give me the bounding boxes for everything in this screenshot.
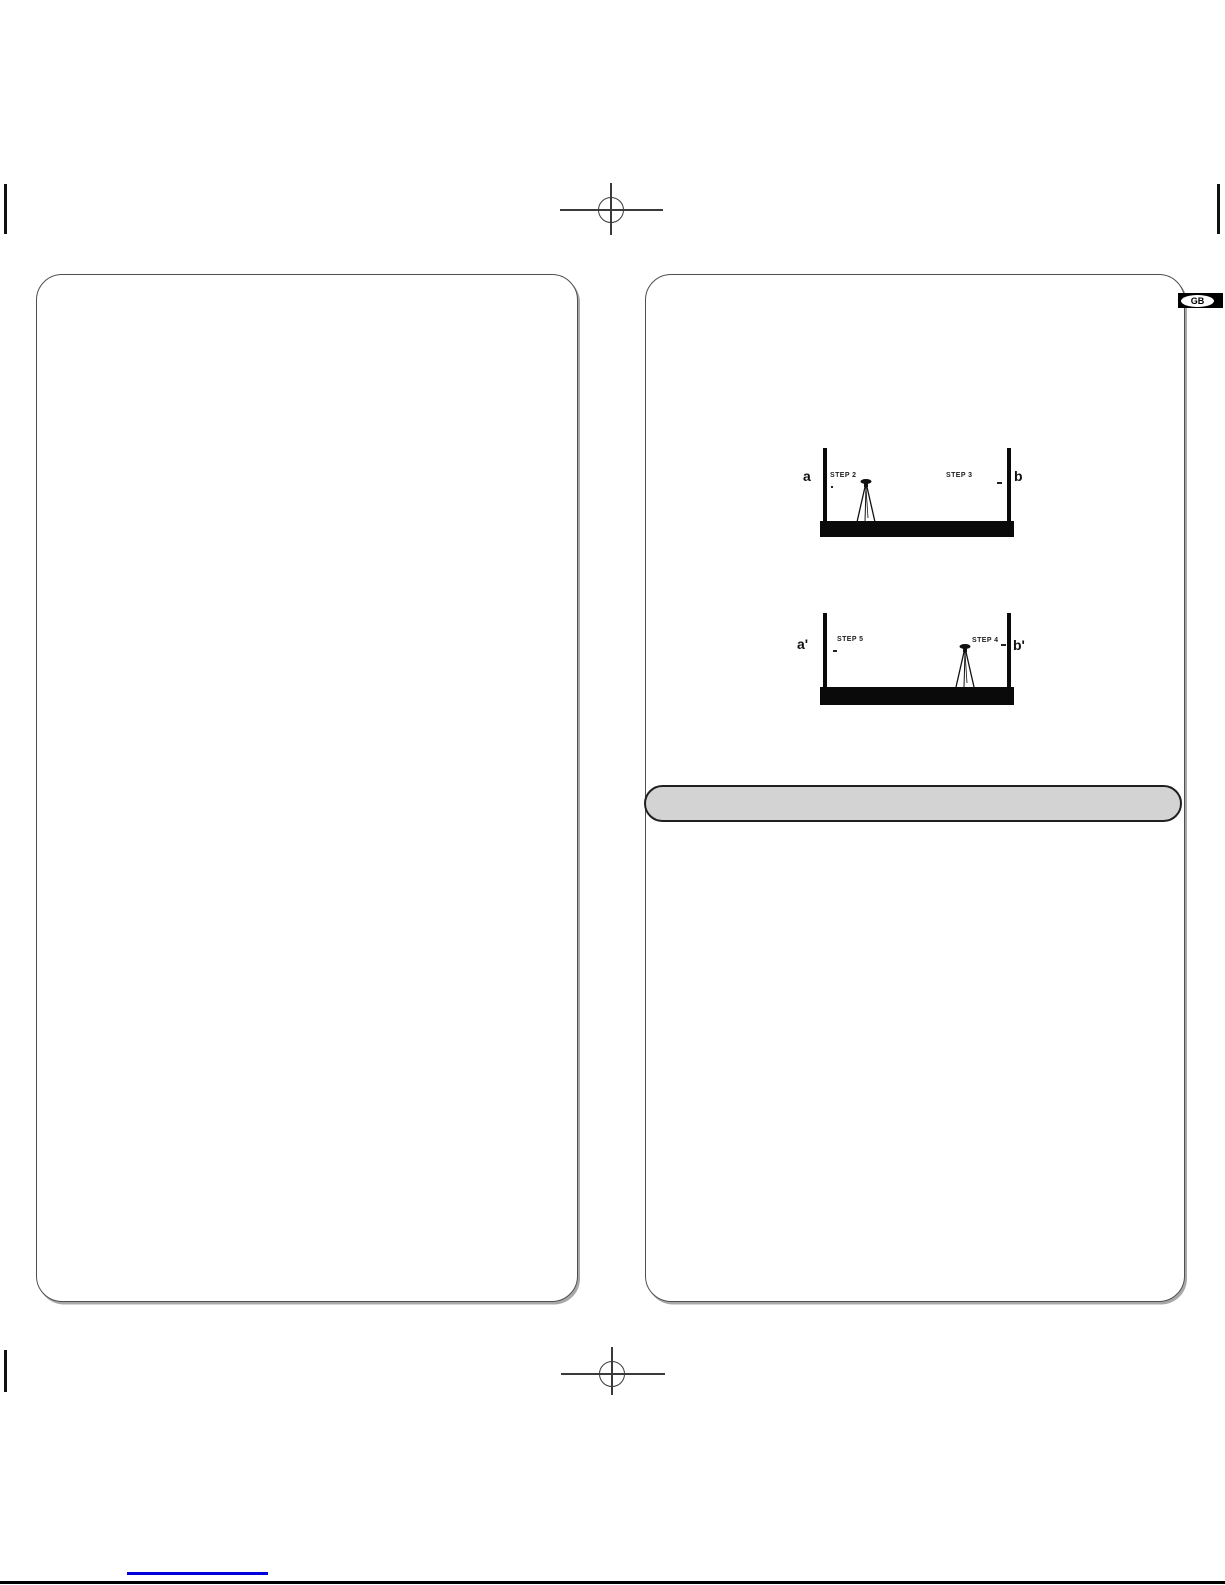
diagram-left-wall — [823, 448, 827, 523]
registration-circle — [598, 197, 624, 223]
diagram-floor — [820, 687, 1014, 705]
left-content-panel — [36, 274, 578, 1302]
tripod-level-icon — [951, 643, 979, 689]
crop-tick-icon — [4, 1350, 7, 1392]
laser-mark — [1001, 644, 1006, 646]
wall-label-a: a — [803, 468, 811, 484]
footer-rule — [0, 1581, 1225, 1584]
step-label: STEP 5 — [837, 636, 863, 643]
language-badge-oval: GB — [1181, 295, 1214, 307]
language-badge-label: GB — [1191, 295, 1205, 307]
registration-circle — [599, 1361, 625, 1387]
crop-tick-icon — [1217, 184, 1220, 234]
crop-tick-icon — [4, 184, 7, 234]
diagram-floor — [820, 521, 1014, 537]
manual-page: GB a b STEP 2 STEP 3 a' b' STEP 5 STEP 4 — [0, 0, 1225, 1585]
tripod-level-icon — [852, 478, 880, 524]
diagram-right-wall — [1007, 613, 1011, 689]
diagram-left-wall — [823, 613, 827, 689]
footer-link-underline — [127, 1572, 268, 1575]
wall-label-b: b — [1014, 468, 1023, 484]
laser-mark — [833, 650, 837, 652]
section-header-bar — [644, 785, 1182, 822]
step-label: STEP 3 — [946, 472, 972, 479]
diagram-right-wall — [1007, 448, 1011, 523]
language-badge: GB — [1178, 293, 1223, 308]
laser-mark — [997, 482, 1002, 484]
wall-label-b-prime: b' — [1013, 637, 1025, 653]
wall-label-a-prime: a' — [797, 636, 808, 652]
laser-mark — [831, 486, 833, 488]
